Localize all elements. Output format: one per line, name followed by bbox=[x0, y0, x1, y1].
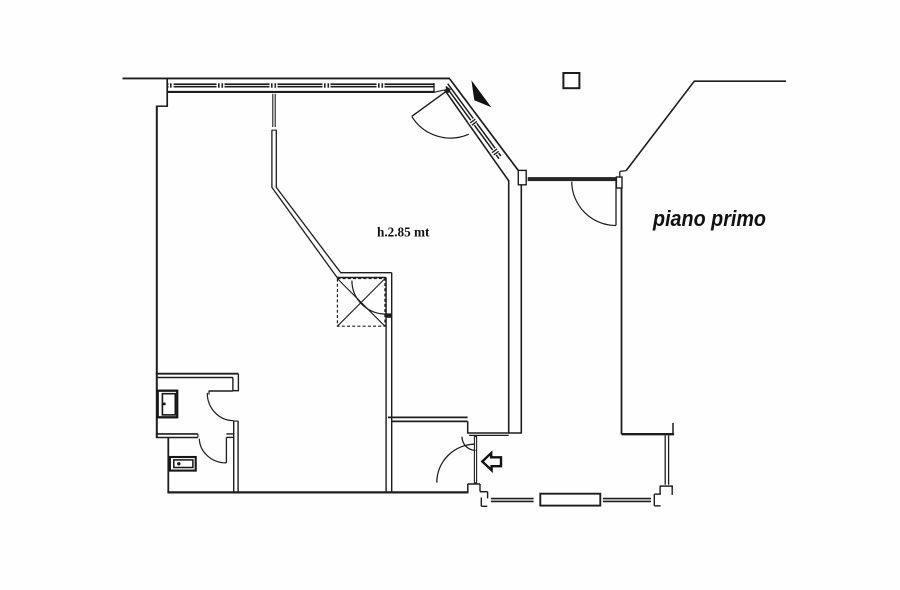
svg-text:h.2.85 mt: h.2.85 mt bbox=[377, 225, 430, 240]
svg-text:piano primo: piano primo bbox=[652, 206, 766, 231]
